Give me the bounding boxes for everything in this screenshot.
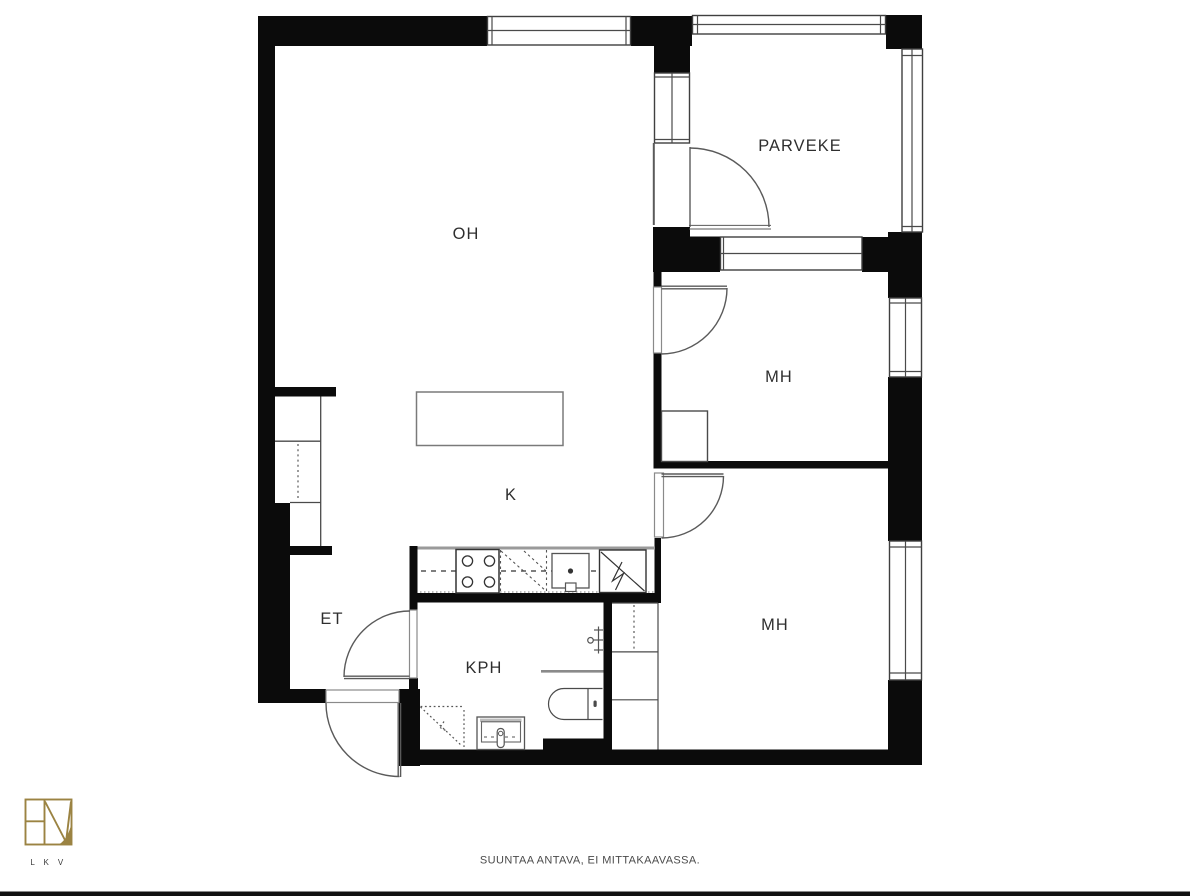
svg-text:MH: MH bbox=[761, 616, 789, 634]
svg-text:KPH: KPH bbox=[465, 659, 502, 677]
svg-text:ET: ET bbox=[320, 610, 343, 628]
svg-text:PARVEKE: PARVEKE bbox=[758, 137, 842, 155]
svg-text:K: K bbox=[505, 486, 517, 504]
svg-text:L K V: L K V bbox=[30, 858, 66, 867]
svg-text:SUUNTAA ANTAVA, EI MITTAKAAVAS: SUUNTAA ANTAVA, EI MITTAKAAVASSA. bbox=[480, 855, 700, 867]
svg-text:MH: MH bbox=[765, 368, 793, 386]
svg-text:OH: OH bbox=[453, 225, 480, 243]
